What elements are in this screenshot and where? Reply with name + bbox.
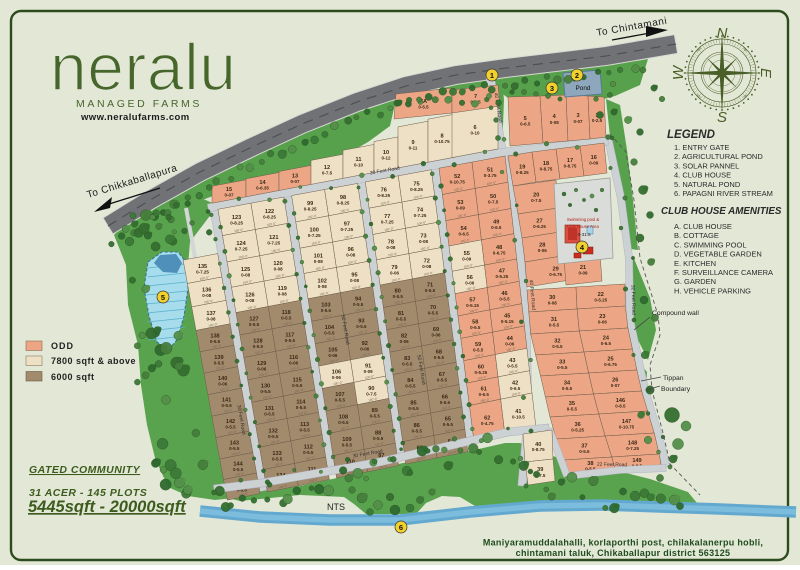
svg-text:0-5.5: 0-5.5	[303, 450, 314, 455]
svg-text:0-8.25: 0-8.25	[377, 193, 390, 198]
svg-text:0-06: 0-06	[538, 248, 548, 253]
svg-text:0-5.5: 0-5.5	[264, 411, 275, 416]
svg-text:chintamani taluk, Chikaballapu: chintamani taluk, Chikaballapur district…	[516, 548, 731, 558]
svg-text:0-5.5: 0-5.5	[370, 414, 381, 419]
svg-text:Club House Area: Club House Area	[567, 224, 599, 229]
svg-text:Pond: Pond	[576, 85, 591, 92]
svg-text:0-7.25: 0-7.25	[626, 446, 639, 451]
svg-text:NTS: NTS	[327, 502, 345, 512]
svg-text:0-6.75: 0-6.75	[549, 272, 562, 277]
svg-text:0-5.5: 0-5.5	[440, 400, 451, 405]
svg-text:0-6.75: 0-6.75	[604, 362, 617, 367]
svg-text:0-08: 0-08	[241, 273, 251, 278]
svg-text:0-08: 0-08	[386, 245, 396, 250]
svg-text:0-07: 0-07	[611, 383, 621, 388]
svg-text:0-5.5: 0-5.5	[342, 442, 353, 447]
svg-text:0-31.5: 0-31.5	[577, 232, 590, 237]
svg-text:0-5.5: 0-5.5	[418, 105, 429, 110]
svg-text:0-2.5: 0-2.5	[592, 118, 603, 123]
svg-text:0-6.5: 0-6.5	[491, 225, 502, 230]
svg-text:0-8.75: 0-8.75	[540, 167, 553, 172]
svg-text:0-5.5: 0-5.5	[393, 294, 404, 299]
svg-text:N: N	[717, 25, 728, 42]
svg-text:0-5.5: 0-5.5	[473, 348, 484, 353]
svg-text:0-5.5: 0-5.5	[412, 428, 423, 433]
svg-text:0-5.5: 0-5.5	[335, 398, 346, 403]
svg-text:0-10: 0-10	[354, 162, 364, 167]
svg-text:0-6.35: 0-6.35	[256, 186, 269, 191]
svg-text:0-08: 0-08	[274, 266, 284, 271]
svg-text:0-8.25: 0-8.25	[516, 170, 529, 175]
svg-text:1. ENTRY GATE: 1. ENTRY GATE	[674, 143, 729, 152]
svg-text:0-5.5: 0-5.5	[428, 310, 439, 315]
svg-text:G. GARDEN: G. GARDEN	[674, 277, 716, 286]
svg-text:0-6.5: 0-6.5	[470, 325, 481, 330]
svg-text:0-6.5: 0-6.5	[510, 386, 521, 391]
svg-text:0-5.5: 0-5.5	[260, 389, 271, 394]
svg-text:0-5.5: 0-5.5	[579, 449, 590, 454]
svg-text:Compound wall: Compound wall	[652, 310, 699, 317]
svg-text:0-5.5: 0-5.5	[549, 323, 560, 328]
svg-text:0-10.75: 0-10.75	[619, 425, 635, 430]
svg-text:0-08: 0-08	[314, 259, 324, 264]
svg-text:0-7.25: 0-7.25	[308, 233, 321, 238]
svg-text:0-5.5: 0-5.5	[499, 297, 510, 302]
svg-text:2: 2	[575, 71, 579, 80]
svg-text:0-5.5: 0-5.5	[324, 330, 335, 335]
svg-text:0-5.5: 0-5.5	[552, 344, 563, 349]
svg-text:0-06: 0-06	[328, 353, 338, 358]
svg-text:0-5.5: 0-5.5	[443, 422, 454, 427]
svg-text:0-7.25: 0-7.25	[381, 219, 394, 224]
svg-text:0-7.5: 0-7.5	[531, 198, 542, 203]
svg-text:0-08: 0-08	[422, 264, 432, 269]
svg-text:0-06: 0-06	[332, 375, 342, 380]
svg-text:0-10.75: 0-10.75	[450, 179, 466, 184]
svg-text:0-5.25: 0-5.25	[594, 298, 607, 303]
svg-text:22 Feet Road: 22 Feet Road	[597, 462, 628, 469]
svg-text:W: W	[670, 64, 687, 80]
svg-text:GATED COMMUNITY: GATED COMMUNITY	[29, 464, 141, 476]
svg-text:Maniyaramuddalahalli, korlapor: Maniyaramuddalahalli, korlaporthi post, …	[483, 538, 763, 548]
svg-text:7800 sqft & above: 7800 sqft & above	[51, 356, 136, 366]
svg-text:3: 3	[550, 84, 554, 93]
svg-text:0-6.5: 0-6.5	[601, 341, 612, 346]
svg-text:0-8.75: 0-8.75	[564, 164, 577, 169]
svg-text:3. SOLAR PANNEL: 3. SOLAR PANNEL	[674, 161, 739, 170]
svg-text:0-5.5: 0-5.5	[396, 317, 407, 322]
svg-text:0-5.5: 0-5.5	[507, 364, 518, 369]
svg-text:5445sqft - 20000sqft: 5445sqft - 20000sqft	[28, 498, 187, 516]
svg-text:0-5.5: 0-5.5	[402, 361, 413, 366]
svg-text:LEGEND: LEGEND	[667, 129, 715, 141]
svg-text:0-7.5: 0-7.5	[322, 170, 333, 175]
svg-text:CLUB HOUSE AMENITIES: CLUB HOUSE AMENITIES	[661, 206, 782, 217]
svg-text:0-08: 0-08	[346, 253, 356, 258]
svg-text:0-5.5: 0-5.5	[356, 324, 367, 329]
svg-text:0-08: 0-08	[206, 316, 216, 321]
svg-text:E. KITCHEN: E. KITCHEN	[674, 259, 716, 268]
svg-text:0-7.25: 0-7.25	[196, 270, 209, 275]
svg-text:0-6.25: 0-6.25	[533, 224, 546, 229]
svg-text:0-6.5: 0-6.5	[458, 231, 469, 236]
svg-text:0-5.5: 0-5.5	[249, 322, 260, 327]
svg-text:6000 sqft: 6000 sqft	[51, 372, 95, 382]
svg-text:0-5.5: 0-5.5	[296, 405, 307, 410]
svg-text:Tippan: Tippan	[663, 375, 684, 382]
svg-text:0-7.25: 0-7.25	[414, 213, 427, 218]
svg-text:Swimming pool &: Swimming pool &	[567, 217, 600, 222]
svg-text:0-6.5: 0-6.5	[479, 392, 490, 397]
svg-text:neralu: neralu	[50, 30, 236, 104]
svg-text:0-07: 0-07	[290, 179, 300, 184]
svg-text:0-08: 0-08	[550, 120, 560, 125]
svg-text:0-09: 0-09	[589, 161, 599, 166]
svg-text:0-3.75: 0-3.75	[484, 173, 497, 178]
svg-text:F. SURVEILLANCE CAMERA: F. SURVEILLANCE CAMERA	[674, 268, 773, 277]
svg-text:0-10.75: 0-10.75	[434, 139, 450, 144]
svg-text:0-08: 0-08	[202, 293, 212, 298]
svg-text:0-11: 0-11	[409, 146, 418, 151]
svg-text:0-5.5: 0-5.5	[292, 383, 303, 388]
svg-text:0-7.25: 0-7.25	[235, 247, 248, 252]
svg-text:0-5.5: 0-5.5	[434, 355, 445, 360]
svg-text:H. VEHICLE PARKING: H. VEHICLE PARKING	[674, 286, 751, 295]
svg-text:0-06: 0-06	[257, 367, 267, 372]
svg-text:0-08: 0-08	[245, 298, 255, 303]
svg-text:0-8.25: 0-8.25	[230, 220, 243, 225]
svg-text:0-8.25: 0-8.25	[304, 207, 317, 212]
svg-text:0-06: 0-06	[289, 360, 299, 365]
svg-text:0-5.5: 0-5.5	[425, 288, 436, 293]
svg-text:www.neralufarms.com: www.neralufarms.com	[80, 112, 190, 123]
svg-text:0-5.5: 0-5.5	[408, 406, 419, 411]
svg-text:4. CLUB HOUSE: 4. CLUB HOUSE	[674, 171, 731, 180]
svg-text:0-12: 0-12	[381, 156, 391, 161]
svg-text:0-8.25: 0-8.25	[263, 214, 276, 219]
svg-text:0-5.5: 0-5.5	[299, 428, 310, 433]
svg-text:0-06: 0-06	[598, 320, 608, 325]
svg-text:B. COTTAGE: B. COTTAGE	[674, 231, 719, 240]
svg-text:0-6.5: 0-6.5	[520, 122, 531, 127]
svg-text:D. VEGETABLE GARDEN: D. VEGETABLE GARDEN	[674, 250, 762, 259]
svg-text:S: S	[717, 109, 727, 126]
svg-text:5: 5	[161, 293, 165, 302]
svg-text:0-08: 0-08	[419, 239, 429, 244]
svg-text:0-07: 0-07	[573, 119, 583, 124]
svg-text:32 Feet Road: 32 Feet Road	[629, 285, 636, 316]
svg-text:0-5.5: 0-5.5	[567, 407, 578, 412]
svg-text:C. SWIMMING POOL: C. SWIMMING POOL	[674, 240, 747, 249]
svg-text:0-8.25: 0-8.25	[410, 187, 423, 192]
svg-text:0-08: 0-08	[318, 284, 328, 289]
svg-text:ODD: ODD	[51, 341, 74, 351]
svg-text:0-5.5: 0-5.5	[437, 378, 448, 383]
svg-text:0-5.5: 0-5.5	[338, 420, 349, 425]
svg-text:0-10: 0-10	[470, 130, 480, 135]
svg-text:0-09: 0-09	[456, 206, 466, 211]
svg-text:0-5.5: 0-5.5	[285, 338, 296, 343]
svg-text:0-8.75: 0-8.75	[532, 447, 545, 452]
svg-text:0-5.25: 0-5.25	[571, 428, 584, 433]
svg-text:0-09: 0-09	[462, 257, 472, 262]
svg-text:0-7.5: 0-7.5	[488, 199, 499, 204]
svg-text:0-5.5: 0-5.5	[405, 384, 416, 389]
svg-text:0-09: 0-09	[364, 369, 374, 374]
svg-text:0-08: 0-08	[350, 278, 360, 283]
svg-text:MANAGED FARMS: MANAGED FARMS	[76, 98, 202, 110]
svg-text:0-7.25: 0-7.25	[267, 241, 280, 246]
svg-text:0-06: 0-06	[505, 341, 515, 346]
svg-text:0-06: 0-06	[360, 347, 370, 352]
svg-text:0-06: 0-06	[390, 270, 400, 275]
svg-text:5. NATURAL POND: 5. NATURAL POND	[674, 180, 741, 189]
svg-text:0-5.5: 0-5.5	[281, 316, 292, 321]
svg-text:E: E	[757, 68, 774, 79]
svg-text:1: 1	[490, 71, 494, 80]
svg-text:0-06: 0-06	[431, 333, 441, 338]
svg-text:0-4.75: 0-4.75	[481, 421, 494, 426]
svg-text:0-06: 0-06	[465, 280, 475, 285]
svg-text:0-5.5: 0-5.5	[321, 308, 332, 313]
svg-text:0-08: 0-08	[548, 301, 558, 306]
svg-text:0-10.5: 0-10.5	[512, 415, 525, 420]
svg-text:0-5.5: 0-5.5	[272, 456, 283, 461]
svg-text:0-5.5: 0-5.5	[353, 302, 364, 307]
svg-text:6. PAPAGNI RIVER STREAM: 6. PAPAGNI RIVER STREAM	[674, 189, 773, 198]
svg-text:0-09: 0-09	[578, 271, 588, 276]
svg-text:0-07: 0-07	[224, 193, 234, 198]
svg-text:6: 6	[399, 523, 403, 532]
svg-text:0-8.5: 0-8.5	[615, 404, 626, 409]
svg-text:0-6.75: 0-6.75	[493, 250, 506, 255]
svg-text:0-08: 0-08	[278, 292, 288, 297]
svg-text:A. CLUB HOUSE: A. CLUB HOUSE	[674, 222, 732, 231]
svg-text:0-5.5: 0-5.5	[562, 386, 573, 391]
svg-text:0-5.5: 0-5.5	[373, 436, 384, 441]
svg-text:0-5.5: 0-5.5	[557, 365, 568, 370]
svg-text:0-5.5: 0-5.5	[268, 434, 279, 439]
svg-text:0-8.25: 0-8.25	[337, 201, 350, 206]
svg-text:0-7.25: 0-7.25	[341, 227, 354, 232]
svg-text:0-7.5: 0-7.5	[366, 391, 377, 396]
svg-text:Boundary: Boundary	[661, 386, 691, 393]
svg-text:2. AGRICULTURAL POND: 2. AGRICULTURAL POND	[674, 152, 763, 161]
svg-text:0-06: 0-06	[400, 339, 410, 344]
svg-text:0-5.5: 0-5.5	[253, 344, 264, 349]
